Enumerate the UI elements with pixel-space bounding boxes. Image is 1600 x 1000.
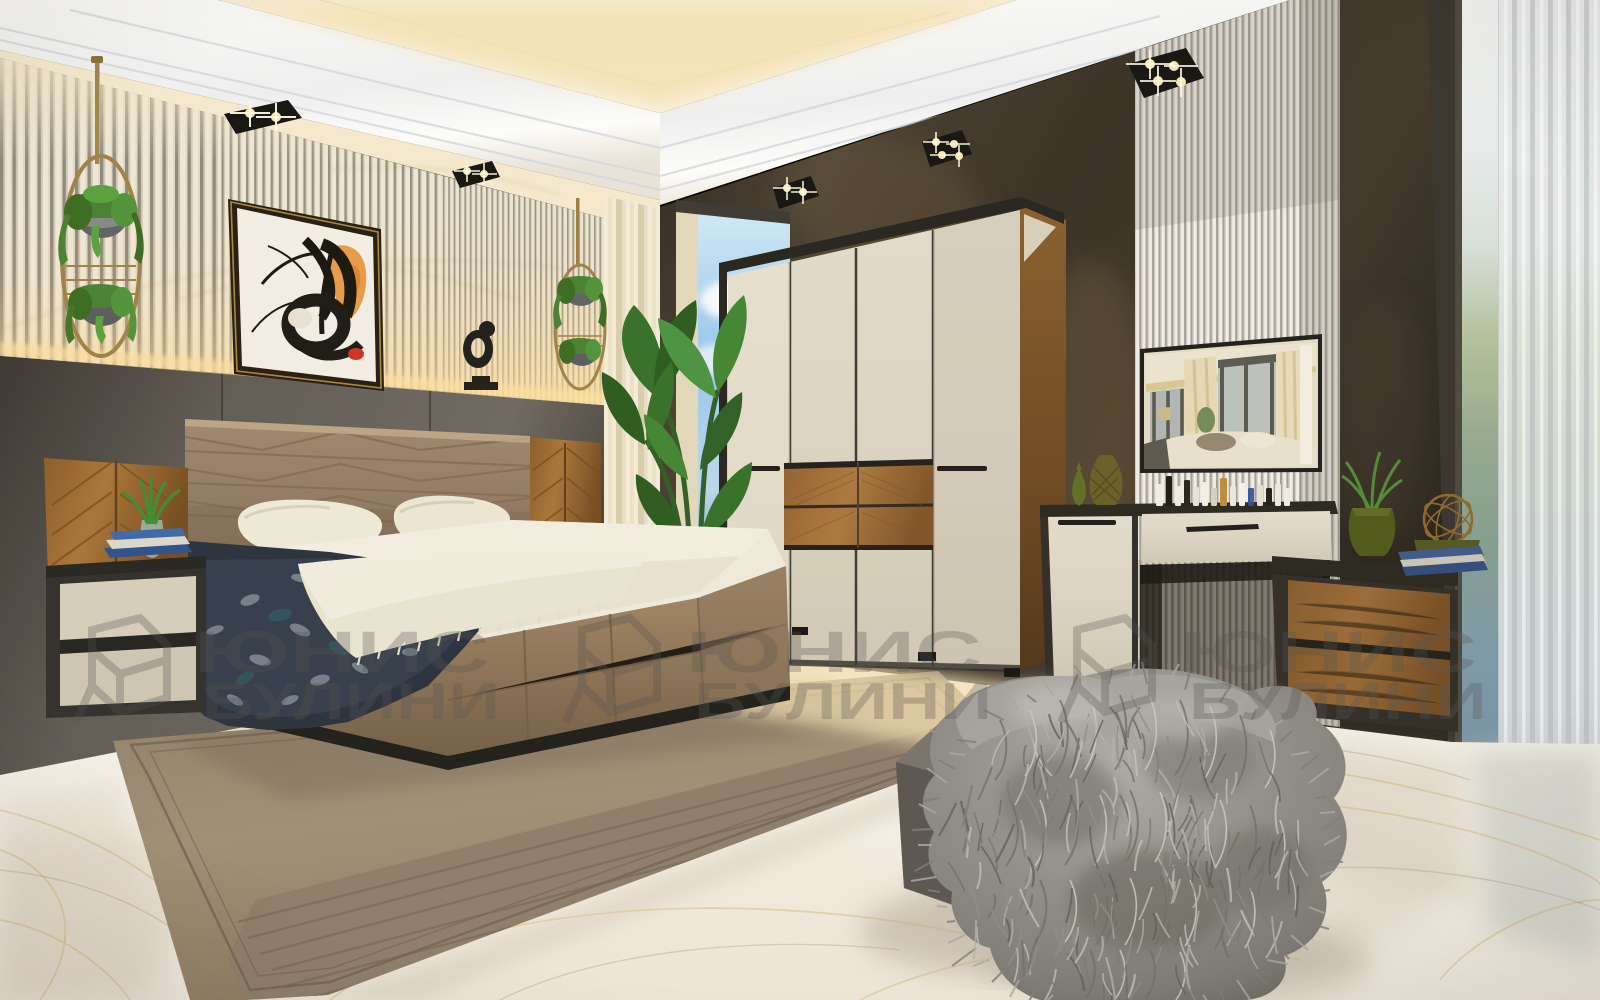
svg-text:БУЛИНИ: БУЛИНИ [202,673,500,731]
svg-text:БУЛИНИ: БУЛИНИ [1189,673,1487,731]
svg-text:БУЛИНИ: БУЛИНИ [694,673,992,731]
